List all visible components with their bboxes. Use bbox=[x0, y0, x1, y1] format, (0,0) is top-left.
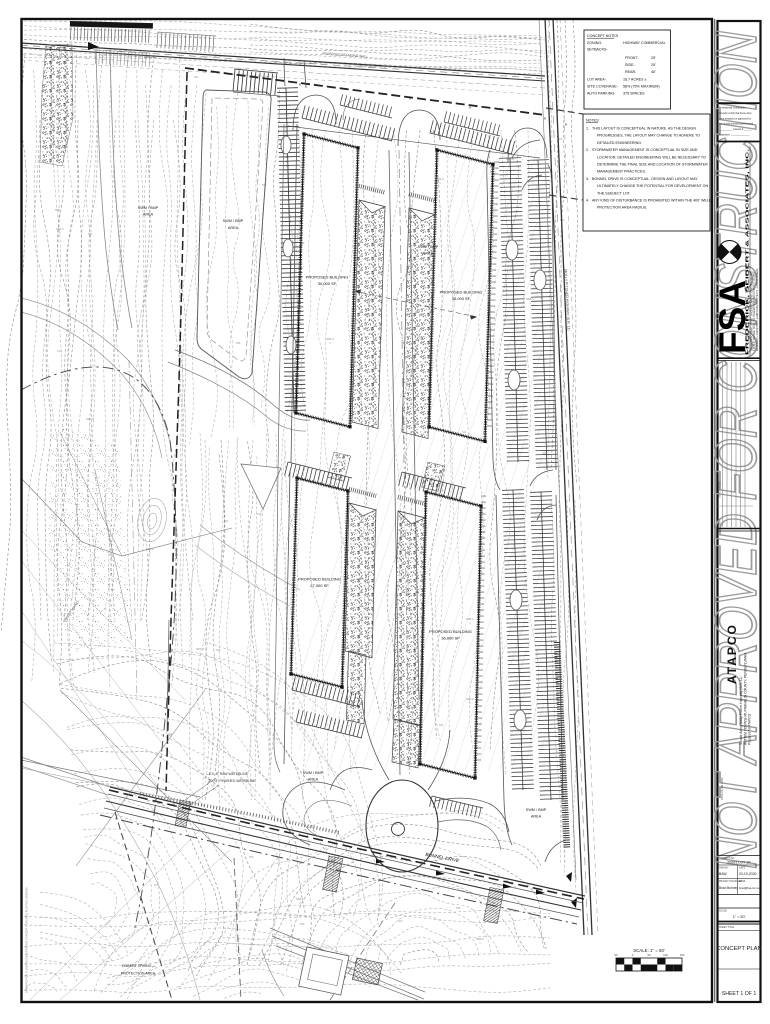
svg-text:590: 590 bbox=[300, 922, 305, 926]
svg-text:PROPOSED BUILDING: PROPOSED BUILDING bbox=[429, 629, 472, 634]
svg-text:50: 50 bbox=[614, 953, 618, 957]
svg-text:SITE COVERAGE-: SITE COVERAGE- bbox=[587, 85, 619, 89]
svg-text:×: × bbox=[469, 621, 471, 625]
svg-text:CONCEPT PLAN: CONCEPT PLAN bbox=[716, 946, 762, 952]
svg-text:DESCRIPTION: DESCRIPTION bbox=[719, 481, 722, 498]
svg-text:SWM / BMP: SWM / BMP bbox=[303, 771, 324, 775]
svg-text:×: × bbox=[299, 901, 301, 905]
svg-text:LOCATION. DETAILED ENGINEERIN: LOCATION. DETAILED ENGINEERING WILL BE N… bbox=[597, 155, 706, 159]
svg-text:375 SPACES: 375 SPACES bbox=[623, 92, 645, 96]
svg-text:×: × bbox=[479, 941, 481, 945]
svg-text:PROPOSED BUILDING: PROPOSED BUILDING bbox=[298, 577, 341, 582]
svg-text:DATE: DATE bbox=[739, 866, 746, 869]
svg-text:I hereby certify that these do: I hereby certify that these docs bbox=[719, 112, 752, 115]
svg-text:Expiration: ______________: Expiration: ______________ bbox=[719, 134, 750, 137]
svg-text:Gas Gas: Gas Gas bbox=[144, 55, 157, 59]
svg-text:610: 610 bbox=[57, 349, 62, 353]
svg-text:593: 593 bbox=[224, 519, 229, 523]
svg-text:Professional Certification:: Professional Certification: bbox=[719, 107, 746, 110]
svg-text:×: × bbox=[519, 521, 521, 525]
svg-text:128 SOUTH POTOMAC STREET, HAGE: 128 SOUTH POTOMAC STREET, HAGERSTOWN, MD… bbox=[751, 270, 754, 351]
svg-text:NOTES:: NOTES: bbox=[586, 119, 600, 123]
svg-text:BAW: BAW bbox=[719, 872, 727, 876]
svg-text:20003.LOT 1R: 20003.LOT 1R bbox=[727, 860, 751, 864]
svg-text:were prepared or approved by: were prepared or approved by bbox=[719, 117, 752, 120]
svg-text:CONCEPT NOTES: CONCEPT NOTES bbox=[587, 34, 619, 38]
svg-text:3.: 3. bbox=[586, 177, 589, 181]
svg-text:AUTO PARKING-: AUTO PARKING- bbox=[587, 92, 616, 96]
svg-text:×: × bbox=[59, 231, 61, 235]
svg-text:AREA: AREA bbox=[308, 778, 319, 782]
svg-text:FRONT-: FRONT- bbox=[625, 56, 639, 60]
svg-text:THE SUBJECT LOT.: THE SUBJECT LOT. bbox=[597, 191, 631, 195]
svg-text:609: 609 bbox=[257, 512, 262, 516]
svg-text:×: × bbox=[469, 701, 471, 705]
svg-text:me, a duly licensed profession: me, a duly licensed professional bbox=[719, 123, 753, 126]
svg-text:594: 594 bbox=[168, 732, 173, 736]
svg-text:REAR-: REAR- bbox=[625, 70, 637, 74]
svg-text:PROPOSED BUILDING: PROPOSED BUILDING bbox=[440, 290, 483, 295]
svg-text:608: 608 bbox=[236, 341, 241, 345]
svg-text:PROTECTION AREA RADIUS.: PROTECTION AREA RADIUS. bbox=[597, 206, 647, 210]
svg-text:ATAPCO: ATAPCO bbox=[725, 623, 739, 684]
svg-text:27,000 SF: 27,000 SF bbox=[310, 583, 329, 588]
svg-text:596: 596 bbox=[262, 183, 267, 187]
svg-text:SWM / BMP: SWM / BMP bbox=[223, 219, 244, 223]
svg-text:2.: 2. bbox=[586, 148, 589, 152]
svg-text:598: 598 bbox=[55, 208, 60, 212]
svg-text:4.: 4. bbox=[586, 199, 589, 203]
svg-text:×: × bbox=[439, 181, 441, 185]
svg-text:DETAILED ENGINEERING.: DETAILED ENGINEERING. bbox=[597, 141, 642, 145]
svg-text:Brad Mohney: Brad Mohney bbox=[719, 886, 738, 890]
svg-text:ANY KIND OF DISTURBANCE IS PRO: ANY KIND OF DISTURBANCE IS PROHIBITED WI… bbox=[592, 199, 711, 203]
svg-text:×: × bbox=[509, 161, 511, 165]
svg-text:592: 592 bbox=[88, 232, 93, 236]
svg-text:SHEET TITLE: SHEET TITLE bbox=[719, 926, 734, 929]
svg-text:×: × bbox=[329, 341, 331, 345]
svg-text:MARK: MARK bbox=[719, 519, 722, 526]
svg-text:36,000 SF: 36,000 SF bbox=[441, 636, 460, 641]
svg-text:ULTIMATELY CHANGE THE POTENTIA: ULTIMATELY CHANGE THE POTENTIAL FOR DEVE… bbox=[597, 184, 708, 188]
svg-text:30,000 SF: 30,000 SF bbox=[318, 281, 337, 286]
svg-text:DETERMINE THE FINAL SIZE AND L: DETERMINE THE FINAL SIZE AND LOCATION OF… bbox=[597, 163, 708, 167]
svg-text:×: × bbox=[544, 116, 547, 121]
svg-text:×: × bbox=[359, 581, 361, 585]
svg-text:×: × bbox=[199, 651, 201, 655]
svg-text:590: 590 bbox=[249, 855, 254, 859]
svg-text:596: 596 bbox=[456, 906, 461, 910]
svg-text:—EX. 8" RAW WATERLINE: —EX. 8" RAW WATERLINE bbox=[206, 772, 249, 776]
svg-text:THIS LAYOUT IS CONCEPTUAL IN N: THIS LAYOUT IS CONCEPTUAL IN NATURE. AS … bbox=[592, 127, 696, 131]
svg-text:×: × bbox=[89, 421, 91, 425]
svg-text:40': 40' bbox=[651, 70, 656, 74]
svg-text:×: × bbox=[409, 96, 412, 101]
svg-text:MANAGEMENT PRACTICES.: MANAGEMENT PRACTICES. bbox=[597, 170, 646, 174]
svg-text:×: × bbox=[565, 122, 568, 127]
svg-text:03-19-2020: 03-19-2020 bbox=[739, 872, 756, 876]
svg-text:100: 100 bbox=[663, 953, 668, 957]
svg-text:__________ License # ______: __________ License # ______ bbox=[718, 128, 753, 131]
svg-text:EGBERT SPRING —: EGBERT SPRING — bbox=[122, 964, 156, 968]
svg-text:SWM / BMP: SWM / BMP bbox=[138, 206, 159, 210]
svg-text:50: 50 bbox=[647, 953, 651, 957]
svg-text:NOT APPROVED FOR CONSTRUCTION: NOT APPROVED FOR CONSTRUCTION bbox=[704, 31, 769, 869]
svg-text:591: 591 bbox=[194, 75, 199, 79]
svg-text:30,000 SF: 30,000 SF bbox=[452, 296, 471, 301]
svg-text:1" = 50': 1" = 50' bbox=[733, 915, 746, 919]
svg-text:SCALE: SCALE bbox=[719, 910, 727, 913]
svg-text:603: 603 bbox=[560, 218, 565, 222]
svg-text:SITE PLAN FOR: SITE PLAN FOR bbox=[720, 777, 724, 800]
svg-text:16.7 ACRES ±: 16.7 ACRES ± bbox=[623, 78, 646, 82]
svg-text:×: × bbox=[299, 82, 302, 87]
svg-text:FREDERICK, SEIBERT & ASSOCIATE: FREDERICK, SEIBERT & ASSOCIATES, INC. bbox=[745, 149, 750, 355]
svg-text:ENGINEERS • SURVEYORS • LANDSC: ENGINEERS • SURVEYORS • LANDSCAPE ARCHIT… bbox=[756, 268, 759, 351]
svg-text:Prepared for ATAPCO: Prepared for ATAPCO bbox=[748, 713, 752, 745]
svg-text:LOT AREA-: LOT AREA- bbox=[587, 78, 607, 82]
svg-text:600: 600 bbox=[398, 919, 403, 923]
svg-text:590: 590 bbox=[216, 648, 221, 652]
svg-text:150: 150 bbox=[680, 953, 685, 957]
svg-text:SWM / BMP: SWM / BMP bbox=[526, 808, 547, 812]
svg-text:DRAWING FILE: P:\20003\CONCEPT: DRAWING FILE: P:\20003\CONCEPT\20003 CON… bbox=[25, 887, 29, 993]
svg-text:PROPOSED BUILDING: PROPOSED BUILDING bbox=[306, 274, 349, 279]
svg-text:25': 25' bbox=[651, 56, 656, 60]
svg-text:DWN BY: DWN BY bbox=[719, 866, 729, 869]
svg-text:PROJECT NO: PROJECT NO bbox=[719, 857, 735, 860]
svg-text:AREA: AREA bbox=[143, 213, 154, 217]
svg-text:AREA: AREA bbox=[531, 815, 542, 819]
svg-text:SETBACKS-: SETBACKS- bbox=[587, 48, 608, 52]
svg-text:PROGRESSES, THE LAYOUT MAY CHA: PROGRESSES, THE LAYOUT MAY CHANGE TO ADH… bbox=[597, 134, 700, 138]
svg-text:ZONING-: ZONING- bbox=[587, 41, 603, 45]
svg-text:25': 25' bbox=[651, 63, 656, 67]
svg-text:HIGHWAY COMMERCIAL: HIGHWAY COMMERCIAL bbox=[623, 41, 666, 45]
svg-text:611: 611 bbox=[462, 430, 467, 434]
svg-text:BONNEL DRIVE IS CONCEPTUAL. D: BONNEL DRIVE IS CONCEPTUAL. DESIGN AND L… bbox=[592, 177, 698, 181]
svg-text:58% (75% MAXIMUM): 58% (75% MAXIMUM) bbox=[623, 85, 660, 89]
svg-text:×: × bbox=[529, 301, 531, 305]
svg-text:×: × bbox=[559, 721, 561, 725]
svg-text:5 PUBLIC SQUARE, SUITE 302, HA: 5 PUBLIC SQUARE, SUITE 302, HAGERSTOWN, … bbox=[753, 271, 756, 351]
svg-text:SIDE-: SIDE- bbox=[625, 63, 635, 67]
svg-text:×: × bbox=[469, 105, 472, 110]
svg-text:×: × bbox=[149, 551, 151, 555]
svg-text:1.: 1. bbox=[586, 127, 589, 131]
svg-text:PROTECTION AREA: PROTECTION AREA bbox=[121, 972, 156, 976]
svg-text:EMAIL: EMAIL bbox=[739, 880, 747, 883]
svg-text:SHEET 1 OF 1: SHEET 1 OF 1 bbox=[722, 991, 757, 997]
svg-text:SWM / BMP: SWM / BMP bbox=[418, 245, 439, 249]
svg-text:AREA: AREA bbox=[228, 226, 239, 230]
svg-text:AREA: AREA bbox=[423, 252, 434, 256]
svg-text:EX. 8" FINISHED WATERLINE: EX. 8" FINISHED WATERLINE bbox=[209, 779, 256, 783]
svg-text:600: 600 bbox=[439, 723, 444, 727]
svg-text:STORMWATER MANAGEMENT IS CONCE: STORMWATER MANAGEMENT IS CONCEPTUAL IN S… bbox=[592, 148, 698, 152]
svg-text:brad@fsa-inc.com: brad@fsa-inc.com bbox=[739, 886, 762, 890]
